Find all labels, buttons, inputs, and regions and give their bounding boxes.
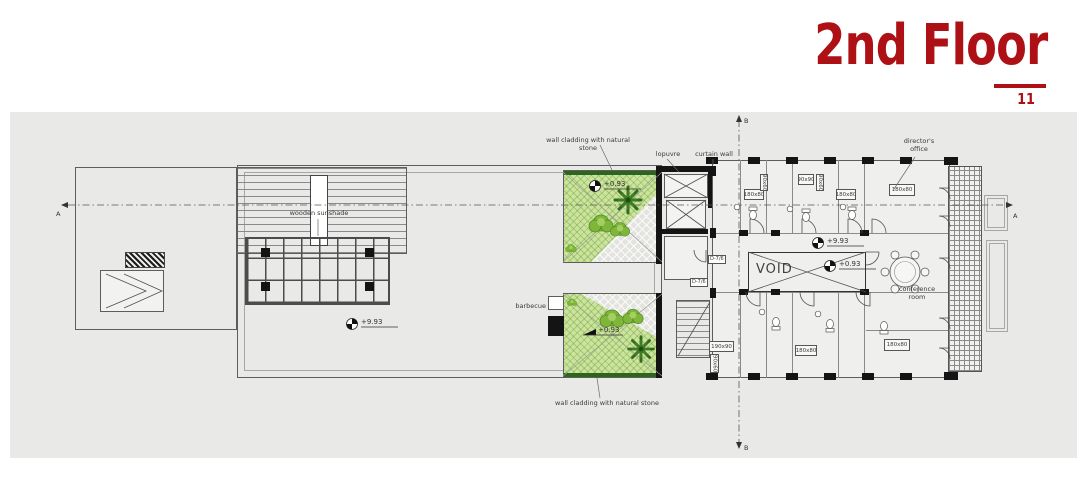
stair-cut-line xyxy=(678,302,710,356)
page-title: 2nd Floor xyxy=(814,18,1047,74)
label-wooden-sunshade: wooden sunshade xyxy=(276,210,362,218)
section-marker-a-right: A xyxy=(1013,212,1018,220)
bush xyxy=(567,299,577,306)
level-marker-lower-courtyard: +0.93 xyxy=(583,326,623,335)
section-marker-b-top: B xyxy=(744,117,748,125)
level-marker-terrace: +9.93 xyxy=(347,318,399,330)
bush xyxy=(566,244,577,252)
section-line-a: A A xyxy=(56,202,1018,220)
level-marker-void: +0.93 xyxy=(825,260,877,272)
toilet xyxy=(802,209,810,222)
section-line-b: B B xyxy=(736,115,748,452)
palm-tree xyxy=(629,337,654,362)
courtyard-diagonals xyxy=(563,172,662,376)
svg-text:+9.93: +9.93 xyxy=(361,318,382,326)
label-conference-room: conference room xyxy=(892,286,942,302)
label-wall-cladding-top: wall cladding with natural stone xyxy=(537,137,639,153)
svg-text:+0.93: +0.93 xyxy=(839,260,860,268)
label-barbecue: barbecue xyxy=(514,303,546,311)
svg-text:+9.93: +9.93 xyxy=(827,237,848,245)
label-void: VOID xyxy=(756,262,793,277)
svg-text:+0.93: +0.93 xyxy=(598,326,619,334)
label-wall-cladding-bottom: wall cladding with natural stone xyxy=(552,400,662,408)
level-marker-upper-courtyard: +0.93 xyxy=(590,180,642,192)
toilet xyxy=(848,207,856,220)
section-marker-a-left: A xyxy=(56,210,61,218)
elevator-cross xyxy=(664,174,708,229)
palm-tree xyxy=(615,187,641,213)
toilet xyxy=(826,320,834,333)
bush xyxy=(623,309,643,323)
label-louvre: lopuvre xyxy=(650,151,686,159)
label-curtain-wall: curtain wall xyxy=(692,151,736,159)
toilet xyxy=(880,322,888,335)
header-band: 2nd Floor 11 xyxy=(0,0,1087,112)
toilet xyxy=(749,207,757,220)
title-underline xyxy=(994,84,1046,88)
label-directors-office: director's office xyxy=(894,138,944,154)
page-number: 11 xyxy=(1017,90,1035,108)
bush xyxy=(589,215,613,232)
chevron-marks xyxy=(106,274,162,308)
floor-plan: 180x80 90x60 90x90 90x60 180x80 180x80 1… xyxy=(0,112,1087,458)
bush xyxy=(600,310,624,327)
toilet xyxy=(772,318,780,331)
svg-text:+0.93: +0.93 xyxy=(604,180,625,188)
section-marker-b-bottom: B xyxy=(744,444,748,452)
level-marker-corridor: +9.93 xyxy=(813,237,865,249)
bush xyxy=(610,223,629,237)
